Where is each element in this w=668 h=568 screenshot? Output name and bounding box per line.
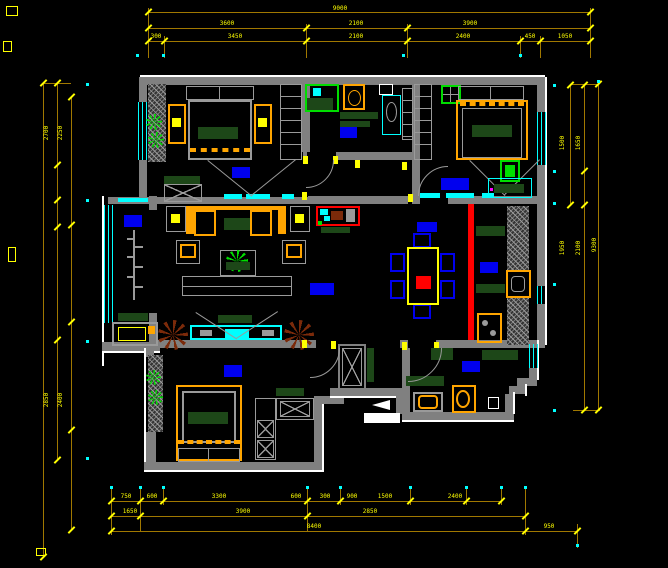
br2-wardrobe-shelf <box>415 120 431 121</box>
dim-ext <box>140 487 141 531</box>
dim-text: 1950 <box>560 241 566 255</box>
br2-headboard-split <box>490 86 491 100</box>
kitchen-counter <box>476 226 505 236</box>
window-br1-line <box>142 102 143 160</box>
br2-bed-pillow <box>472 125 512 137</box>
side-table-lamp <box>295 214 304 223</box>
br2-desk-top <box>494 184 524 193</box>
balcony-plant-twig <box>135 286 143 288</box>
window-br2-line <box>545 112 546 165</box>
hall-cabinet-item <box>324 216 330 221</box>
wall-bath2-bottom <box>402 412 514 420</box>
dim-text: 600 <box>147 494 158 500</box>
dining-chair <box>440 280 455 299</box>
br1-bed-blanket-zigzag <box>190 148 250 152</box>
grip-dot <box>553 84 556 87</box>
dim-text: 2400 <box>456 34 470 40</box>
grip-dot <box>86 340 89 343</box>
dim-text: 9300 <box>592 238 598 252</box>
bath1-sink <box>379 84 393 95</box>
hall-cabinet-item <box>331 211 343 220</box>
balcony-mat <box>118 313 148 321</box>
grip-dot <box>553 409 556 412</box>
grip-dot <box>576 544 579 547</box>
plant-right <box>284 320 314 350</box>
dim-text: 450 <box>525 34 536 40</box>
br2-wardrobe-shelf <box>415 132 431 133</box>
br2-chair-seat <box>505 165 515 177</box>
br1-plant <box>148 132 164 148</box>
floor-plan-canvas: 9000360021003900300345021002400450105075… <box>0 0 668 568</box>
grip-dot <box>162 54 165 57</box>
grip-dot <box>86 457 89 460</box>
grip-dot <box>162 486 165 489</box>
br1-door-vee <box>251 159 296 196</box>
new-partition-wall-red <box>468 204 474 348</box>
window-balcony-line <box>112 205 113 323</box>
dim-tick <box>68 526 76 534</box>
grip-dot <box>339 486 342 489</box>
dim-line <box>148 28 590 29</box>
sofa-arm-left <box>186 206 194 234</box>
window-kitchen-line <box>537 286 538 304</box>
bath1-cabinet-shelf <box>403 100 412 101</box>
br3-wardrobe-x <box>280 401 310 417</box>
hatch-kitchen-counter-b <box>507 298 529 345</box>
hall-cabinet-item <box>318 221 322 225</box>
br1-headboard <box>186 86 254 100</box>
grip-dot <box>110 486 113 489</box>
balcony-plant-twig <box>135 246 143 248</box>
br2-wardrobe-shelf <box>415 144 431 145</box>
dim-text: 1650 <box>576 136 582 150</box>
wall-br3-bottom-edge <box>144 470 324 472</box>
bath2-paper-holder <box>488 397 499 409</box>
kitchen-burner <box>482 320 488 326</box>
br2-fan-blade <box>450 87 451 102</box>
wall-right-kitchen-b <box>537 304 545 345</box>
dim-line <box>43 83 44 557</box>
room-label-bedroom2 <box>441 178 469 190</box>
hall-shelf <box>321 227 350 233</box>
br1-lamp-left <box>172 118 181 127</box>
balcony-plant-twig <box>127 276 135 278</box>
dim-text: 300 <box>320 494 331 500</box>
dim-text: 2100 <box>576 241 582 255</box>
dim-line <box>111 516 525 517</box>
sofa-cushion-right <box>250 210 272 236</box>
sofa-arm-right <box>278 206 286 234</box>
grip-dot <box>519 54 522 57</box>
door-post <box>302 192 307 200</box>
room-label-bath1 <box>340 127 357 138</box>
dim-text: 8400 <box>307 524 321 530</box>
bath2-counter <box>482 350 518 360</box>
bath1-cabinet-shelf <box>403 112 412 113</box>
window-balcony-top <box>118 198 148 202</box>
wall-br3-right-edge <box>322 398 324 472</box>
dim-text: 2850 <box>363 509 377 515</box>
wall-bath2-bottom-edge <box>402 420 514 422</box>
br1-wardrobe-shelf <box>281 120 301 121</box>
window-br2-line <box>541 112 542 165</box>
br3-bed-zigzag <box>178 440 240 444</box>
corner-mark <box>6 6 18 16</box>
title-block <box>364 413 400 423</box>
br2-desk-item <box>490 188 493 191</box>
dim-text: 1050 <box>558 34 572 40</box>
window-kitchen-line <box>541 286 542 304</box>
dim-text: 900 <box>347 494 358 500</box>
grip-dot <box>136 54 139 57</box>
grip-dot <box>306 486 309 489</box>
dim-text: 3450 <box>228 34 242 40</box>
br1-bed-pillow <box>198 127 238 139</box>
dim-text: 600 <box>291 494 302 500</box>
dim-text: 2700 <box>44 126 50 140</box>
br3-wardrobe-x <box>257 420 274 438</box>
bath2-toilet-bowl <box>456 390 470 408</box>
plant-left <box>158 320 188 350</box>
balcony-washer-drum <box>118 327 146 341</box>
dining-chair <box>413 304 431 319</box>
armchair-right-seat <box>286 244 302 258</box>
dim-text: 3900 <box>463 21 477 27</box>
sofa-center-pillow <box>224 218 250 230</box>
kitchen-burner <box>490 330 496 336</box>
br1-headboard-split <box>219 86 220 100</box>
dim-line <box>148 41 590 42</box>
br1-wardrobe-shelf <box>281 108 301 109</box>
window-bath2-line <box>529 344 530 368</box>
armchair-left-seat <box>180 244 196 258</box>
balcony-plant-twig <box>135 266 143 268</box>
grip-dot <box>465 486 468 489</box>
room-label-bedroom3 <box>224 365 242 377</box>
dim-tick <box>567 201 575 209</box>
window-balcony-line <box>108 205 109 323</box>
dining-chair <box>413 233 431 248</box>
bath1-toilet-bowl <box>348 90 361 106</box>
dim-ext <box>148 8 149 58</box>
window-bath2-line <box>537 344 538 368</box>
outer-wall-right-edge2 <box>545 204 547 345</box>
room-label-bedroom1 <box>232 167 250 178</box>
window-br1-line <box>138 102 139 160</box>
door-post <box>408 194 413 202</box>
door-post <box>331 341 336 349</box>
br3-footboard <box>178 448 240 462</box>
wall-br3-left-b <box>146 432 156 462</box>
dining-chair <box>390 253 405 272</box>
grip-dot <box>553 283 556 286</box>
grip-dot <box>86 199 89 202</box>
edge-mark <box>8 247 16 262</box>
room-label-balcony <box>124 215 142 227</box>
dim-text: 2850 <box>44 393 50 407</box>
grip-dot <box>524 486 527 489</box>
wall-br3-bottom <box>144 462 324 470</box>
dim-text: 3600 <box>220 21 234 27</box>
window-balcony-line <box>104 205 105 323</box>
door-post <box>402 342 407 350</box>
dining-table-center <box>416 276 431 289</box>
br1-wardrobe-shelf <box>281 96 301 97</box>
wall-balcony-divider-a <box>149 196 157 210</box>
grip-dot <box>553 170 556 173</box>
dim-text: 2100 <box>349 34 363 40</box>
tv-speaker <box>262 330 274 336</box>
br3-wardrobe-x <box>257 440 274 458</box>
door-post <box>302 340 307 348</box>
wall-right-kitchen-a <box>537 204 545 286</box>
balcony-washer-knob <box>148 326 155 334</box>
dim-text: 1500 <box>378 494 392 500</box>
grip-dot <box>139 486 142 489</box>
grip-dot <box>597 80 600 83</box>
bath1-shower-head <box>313 88 321 96</box>
window-br1-south <box>224 194 242 199</box>
grip-dot <box>409 486 412 489</box>
rug-line <box>182 286 292 287</box>
wall-br3-right <box>314 396 322 470</box>
br1-bench-top <box>164 176 200 184</box>
wall-bath2-step3 <box>509 386 525 394</box>
shaft-x <box>342 348 362 386</box>
br3-plant <box>146 370 161 385</box>
wall-right-upper <box>537 77 545 112</box>
wall-connector2 <box>396 388 404 414</box>
br2-headboard <box>458 86 524 100</box>
dim-text: 750 <box>121 494 132 500</box>
bath1-cabinet-shelf <box>403 124 412 125</box>
kitchen-stove <box>477 313 502 343</box>
br3-footboard-split <box>208 448 209 462</box>
br3-plant <box>148 390 163 405</box>
shaft-shelf <box>367 348 374 382</box>
north-arrow-icon <box>372 400 390 410</box>
bath2-basin <box>418 395 438 409</box>
door-post <box>355 160 360 168</box>
balcony-plant-twig <box>127 256 135 258</box>
br3-wardrobe-top <box>276 388 304 396</box>
window-br1-line <box>146 102 147 160</box>
dim-line <box>148 12 590 13</box>
dim-tick <box>54 456 62 464</box>
dim-line <box>584 85 585 410</box>
wall-bath1-bottom-b <box>336 152 420 160</box>
dim-text: 2400 <box>58 393 64 407</box>
room-label-living <box>310 283 334 295</box>
dim-ext <box>590 8 591 58</box>
coffee-table-leaf <box>226 262 250 270</box>
br1-bench <box>164 184 202 202</box>
dim-text: 2400 <box>448 494 462 500</box>
window-br2-line <box>537 112 538 165</box>
wall-corridor-south <box>308 196 408 204</box>
dim-line <box>570 85 571 205</box>
dim-text: 1650 <box>123 509 137 515</box>
dim-text: 3900 <box>236 509 250 515</box>
dim-line <box>111 531 577 532</box>
wall-bath2-step4 <box>505 394 513 412</box>
bath1-cabinet-shelf <box>403 136 412 137</box>
br2-wardrobe-shelf <box>415 108 431 109</box>
bath1-cabinet <box>402 88 413 140</box>
dim-text: 2250 <box>58 126 64 140</box>
grip-dot <box>500 486 503 489</box>
dim-line <box>71 97 72 530</box>
dining-chair <box>390 280 405 299</box>
room-label-dining <box>417 222 437 232</box>
dim-text: 2100 <box>349 21 363 27</box>
room-label-bath2 <box>462 361 480 372</box>
window-bath2-line <box>533 344 534 368</box>
dim-tick <box>595 406 603 414</box>
br1-plant <box>146 114 162 130</box>
br1-lamp-right <box>258 118 267 127</box>
dim-line <box>598 84 599 410</box>
kitchen-counter <box>476 284 505 293</box>
door-post <box>402 162 407 170</box>
kitchen-sink-basin <box>511 276 525 292</box>
side-table-lamp <box>171 214 180 223</box>
dining-chair <box>440 253 455 272</box>
hatch-kitchen-counter-a <box>507 206 529 270</box>
room-label-kitchen <box>480 262 498 273</box>
dim-text: 1500 <box>560 136 566 150</box>
window-br2-south <box>446 193 474 198</box>
br1-wardrobe-shelf <box>281 144 301 145</box>
br2-bed-zigzag <box>460 102 524 106</box>
grip-dot <box>553 202 556 205</box>
door-arc-bath2 <box>374 314 442 382</box>
sofa-cushion-left <box>194 210 216 236</box>
balcony-plant-twig <box>127 238 135 240</box>
corner-mark <box>3 41 12 52</box>
grip-dot <box>86 83 89 86</box>
dim-text: 950 <box>544 524 555 530</box>
bath1-shower-bench <box>307 98 333 110</box>
wall-bath2-step-edge <box>525 384 527 396</box>
corner-mark <box>36 548 46 556</box>
wall-br2-bottom-a <box>412 196 420 204</box>
br2-fan-blade <box>443 94 459 95</box>
br2-wardrobe-shelf <box>415 96 431 97</box>
dim-text: 9000 <box>333 6 347 12</box>
br3-bed-pillow <box>188 412 228 424</box>
wall-bath2-step2 <box>517 378 537 386</box>
hall-cabinet-item <box>346 209 355 222</box>
tv-speaker <box>200 330 212 336</box>
window-br1-south <box>282 194 294 199</box>
wall-bath2-step-edge <box>513 392 515 414</box>
bath1-shelf <box>340 112 378 119</box>
bath1-basin <box>386 102 397 122</box>
tv-shelf <box>218 315 252 323</box>
wall-br1-left-upper <box>139 77 147 102</box>
br1-door-vee <box>207 160 252 197</box>
dim-text: 300 <box>151 34 162 40</box>
hall-cabinet-item <box>320 209 328 215</box>
balcony-plant-stem <box>133 230 135 300</box>
br1-wardrobe-shelf <box>281 132 301 133</box>
dim-text: 3300 <box>212 494 226 500</box>
grip-dot <box>402 54 405 57</box>
